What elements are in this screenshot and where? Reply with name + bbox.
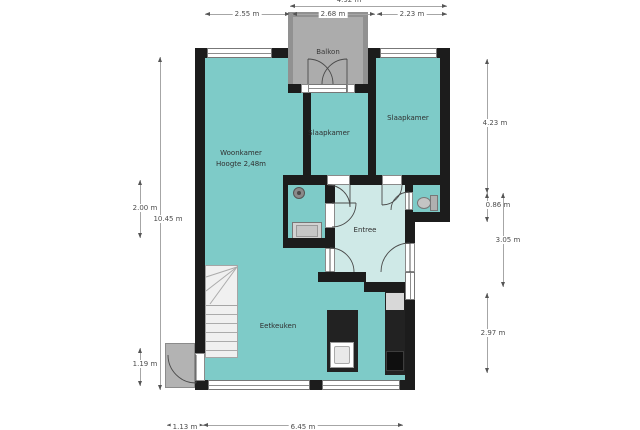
wall bbox=[325, 228, 335, 238]
porch bbox=[165, 343, 195, 388]
wall bbox=[283, 175, 327, 185]
window bbox=[322, 380, 400, 390]
dim-arrow bbox=[205, 12, 210, 16]
dim-left-upper: 2.00 m bbox=[131, 204, 160, 212]
fridge bbox=[386, 293, 404, 310]
dim-right-bottom: 2.97 m bbox=[479, 329, 508, 337]
wall bbox=[355, 84, 368, 93]
dim-left-lower: 1.19 m bbox=[131, 360, 160, 368]
dim-left-total: 10.45 m bbox=[151, 215, 184, 223]
toilet-bowl bbox=[417, 197, 431, 209]
balcony-door-right bbox=[347, 84, 355, 93]
dim-arrow bbox=[370, 12, 375, 16]
wall bbox=[364, 282, 405, 292]
dim-arrow bbox=[138, 348, 142, 353]
dim-arrow bbox=[285, 12, 290, 16]
wall bbox=[195, 380, 208, 390]
balcony-wall-left bbox=[288, 12, 293, 84]
dim-arrow bbox=[203, 423, 208, 427]
wall bbox=[405, 300, 415, 390]
room-label-entree: Entree bbox=[354, 226, 377, 234]
room-label-slaapkamer-mid: Slaapkamer bbox=[308, 129, 350, 137]
dim-arrow bbox=[485, 193, 489, 198]
dim-arrow bbox=[501, 193, 505, 198]
porch-door bbox=[195, 353, 205, 381]
dim-arrow bbox=[138, 180, 142, 185]
dim-right-mid: 3.05 m bbox=[494, 236, 523, 244]
exterior-recess bbox=[415, 222, 495, 390]
dim-top-total: 4.92 m bbox=[335, 0, 364, 4]
room-label-balkon: Balkon bbox=[316, 48, 340, 56]
dim-arrow bbox=[138, 233, 142, 238]
toilet-tank bbox=[430, 195, 438, 211]
window bbox=[207, 48, 272, 58]
room-label-slaapkamer-right: Slaapkamer bbox=[387, 114, 429, 122]
dim-arrow bbox=[292, 12, 297, 16]
room-label-woonkamer-height: Hoogte 2,48m bbox=[216, 160, 266, 168]
dim-arrow bbox=[442, 12, 447, 16]
wall bbox=[440, 48, 450, 222]
window bbox=[405, 272, 415, 300]
stove bbox=[386, 351, 404, 371]
wall bbox=[318, 272, 366, 282]
sink-basin bbox=[334, 346, 350, 364]
balcony-door-left bbox=[301, 84, 309, 93]
wall bbox=[325, 185, 335, 203]
dim-arrow bbox=[158, 57, 162, 62]
dim-right-step: 0.86 m bbox=[484, 201, 513, 209]
wall bbox=[310, 380, 322, 390]
washbasin-inner bbox=[296, 225, 318, 237]
dim-arrow bbox=[485, 293, 489, 298]
dim-arrow bbox=[485, 368, 489, 373]
bedroom-mid-door bbox=[327, 175, 350, 185]
toilet-door bbox=[405, 192, 413, 210]
wall bbox=[272, 48, 288, 58]
room-label-eetkeuken: Eetkeuken bbox=[260, 322, 297, 330]
dim-top-left: 2.55 m bbox=[233, 10, 262, 18]
floor-plan: Balkon Woonkamer Hoogte 2,48m Slaapkamer… bbox=[0, 0, 640, 430]
wall bbox=[288, 84, 301, 93]
dim-top-right: 2.23 m bbox=[398, 10, 427, 18]
shower-head-dot bbox=[297, 191, 301, 195]
dim-arrow bbox=[485, 217, 489, 222]
dim-arrow bbox=[158, 385, 162, 390]
dim-bottom-mid: 6.45 m bbox=[289, 423, 318, 430]
dim-arrow bbox=[398, 423, 403, 427]
dim-top-mid: 2.68 m bbox=[319, 10, 348, 18]
bathroom-door bbox=[325, 203, 335, 228]
wall bbox=[368, 48, 380, 58]
stairs-winders bbox=[205, 265, 238, 306]
entree-floor-ext bbox=[366, 272, 405, 282]
window bbox=[208, 380, 310, 390]
dim-left-total-line bbox=[160, 57, 161, 390]
dim-top-total-line bbox=[290, 6, 447, 7]
stairs bbox=[205, 305, 238, 358]
window bbox=[380, 48, 437, 58]
dim-arrow bbox=[138, 381, 142, 386]
wall bbox=[368, 58, 376, 175]
livingroom-door bbox=[325, 248, 335, 272]
wall bbox=[405, 210, 413, 222]
dim-arrow bbox=[377, 12, 382, 16]
wall bbox=[283, 238, 335, 248]
dim-arrow bbox=[442, 4, 447, 8]
wall bbox=[405, 185, 413, 192]
dim-right-top: 4.23 m bbox=[481, 119, 510, 127]
wall bbox=[400, 380, 415, 390]
dim-arrow bbox=[501, 282, 505, 287]
dim-arrow bbox=[485, 59, 489, 64]
room-label-woonkamer: Woonkamer bbox=[220, 149, 262, 157]
wall bbox=[405, 222, 415, 243]
dim-bottom-left: 1.13 m bbox=[171, 423, 200, 430]
front-door bbox=[405, 243, 415, 272]
dim-arrow bbox=[290, 4, 295, 8]
wall bbox=[350, 175, 382, 185]
wall bbox=[195, 48, 205, 353]
wall bbox=[402, 175, 450, 185]
bedroom-right-door bbox=[382, 175, 402, 185]
window bbox=[308, 84, 347, 93]
